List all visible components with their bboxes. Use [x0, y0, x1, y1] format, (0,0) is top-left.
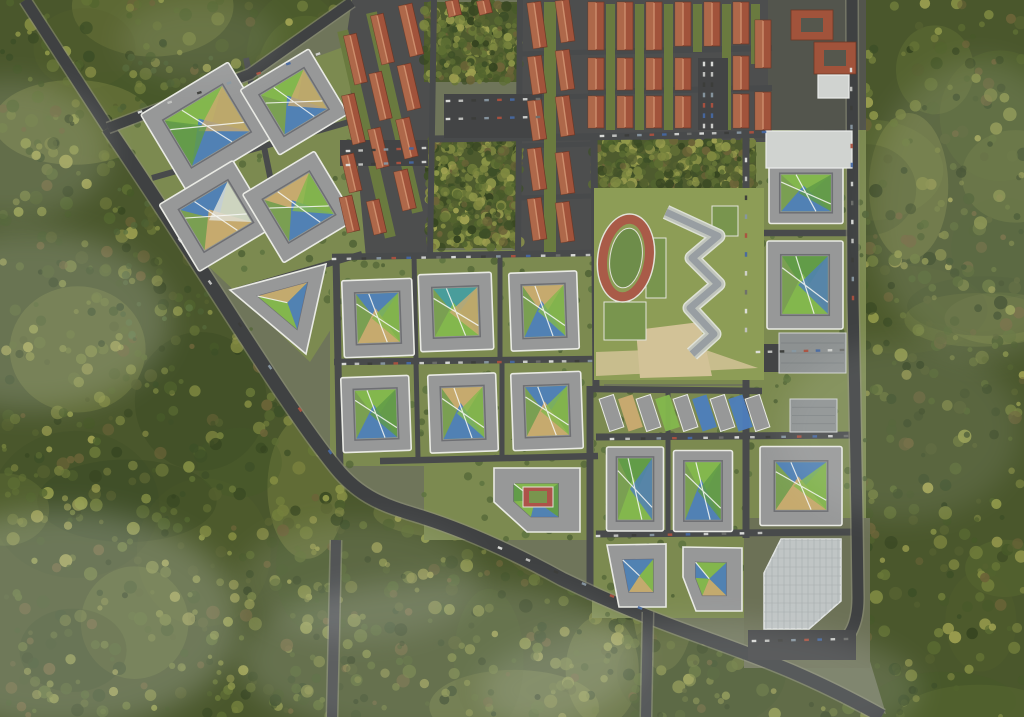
fog-patch: [120, 0, 280, 80]
masterplan-canvas: [0, 0, 1024, 717]
fog-patch: [240, 520, 480, 640]
screenshot-root: [0, 0, 1024, 717]
fog-patch: [780, 340, 1020, 520]
